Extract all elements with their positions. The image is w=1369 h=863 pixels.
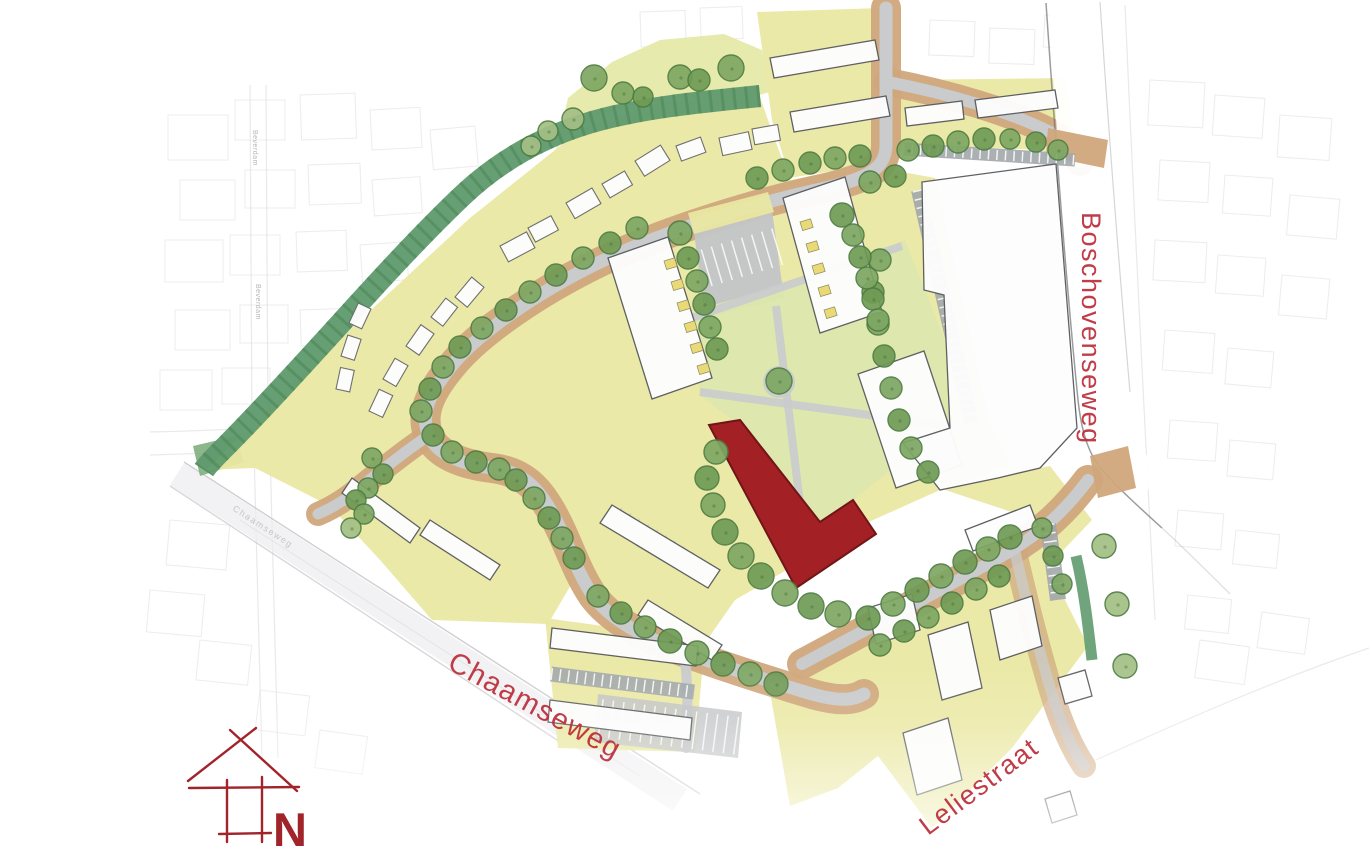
tree-center <box>597 595 600 598</box>
tree-center <box>642 96 645 99</box>
tree-center <box>442 366 445 369</box>
tree-center <box>548 517 551 520</box>
tree-center <box>894 175 897 178</box>
cadastral-parcel <box>1175 510 1224 550</box>
tree-center <box>964 561 967 564</box>
tree-center <box>703 303 706 306</box>
tree-center <box>622 92 625 95</box>
cadastral-parcel <box>1184 595 1231 633</box>
tree-center <box>951 602 954 605</box>
tree-center <box>573 557 576 560</box>
tree-center <box>760 575 763 578</box>
tree-center <box>1009 536 1012 539</box>
cadastral-parcel <box>1279 275 1330 319</box>
tree-center <box>530 145 533 148</box>
tree-center <box>892 603 895 606</box>
tree-center <box>724 531 727 534</box>
tree-center <box>983 138 986 141</box>
tree-center <box>837 613 840 616</box>
tree-center <box>620 612 623 615</box>
bottom-fade-overlay <box>0 660 1369 863</box>
cadastral-parcel <box>1212 95 1265 138</box>
cadastral-parcel <box>175 310 230 350</box>
tree-center <box>866 277 869 280</box>
tree-center <box>1057 149 1060 152</box>
tree-center <box>927 471 930 474</box>
tree-center <box>555 274 558 277</box>
tree-center <box>1009 138 1012 141</box>
tree-center <box>712 504 715 507</box>
cadastral-parcel <box>1162 330 1215 373</box>
tree-center <box>867 617 870 620</box>
tree-center <box>533 497 536 500</box>
cadastral-parcel <box>989 28 1035 65</box>
site-plan-canvas: Beverdam Beverdam Chaamseweg Boschovense… <box>0 0 1369 863</box>
tree-center <box>890 387 893 390</box>
cadastral-parcel <box>300 93 357 140</box>
tree-center <box>898 419 901 422</box>
cadastral-parcel <box>235 100 285 140</box>
tree-center <box>883 355 886 358</box>
tree-center <box>696 280 699 283</box>
tree-center <box>784 592 787 595</box>
cadastral-parcel <box>1225 348 1274 388</box>
tree-center <box>869 181 872 184</box>
tree-center <box>778 380 781 383</box>
tree-center <box>1116 603 1119 606</box>
tree-center <box>679 76 682 79</box>
cadastral-parcel <box>1158 160 1210 203</box>
tree-center <box>879 259 882 262</box>
tree-center <box>371 457 374 460</box>
tree-center <box>432 434 435 437</box>
cadastral-parcel <box>308 163 361 205</box>
tree-center <box>355 499 358 502</box>
tree-center <box>505 309 508 312</box>
tree-center <box>669 640 672 643</box>
tree-center <box>877 319 880 322</box>
cadastral-parcel <box>372 177 422 216</box>
north-label: N <box>273 803 307 856</box>
tree-center <box>547 130 550 133</box>
tree-center <box>987 548 990 551</box>
cadastral-parcel <box>296 230 347 272</box>
cadastral-line <box>1125 5 1155 620</box>
tree-center <box>609 242 612 245</box>
bg-label-beverdam-1: Beverdam <box>251 130 258 166</box>
house-sketch-line <box>219 833 271 834</box>
tree-center <box>957 141 960 144</box>
tree-center <box>740 555 743 558</box>
tree-center <box>696 652 699 655</box>
tree-center <box>1052 555 1055 558</box>
cadastral-parcel <box>1287 195 1340 239</box>
tree-center <box>916 589 919 592</box>
cadastral-parcel <box>245 170 295 208</box>
site-plan-svg: Beverdam Beverdam Chaamseweg Boschovense… <box>0 0 1369 863</box>
tree-center <box>644 626 647 629</box>
tree-center <box>730 67 733 70</box>
tree-center <box>572 118 575 121</box>
cadastral-parcel <box>180 180 235 220</box>
tree-center <box>706 477 709 480</box>
tree-center <box>529 291 532 294</box>
tree-center <box>1103 545 1106 548</box>
bg-label-beverdam-2: Beverdam <box>254 284 261 320</box>
cadastral-parcel <box>929 20 975 57</box>
tree-center <box>1061 583 1064 586</box>
road-edge-line <box>1162 528 1230 594</box>
tree-center <box>636 227 639 230</box>
tree-center <box>940 575 943 578</box>
tree-center <box>382 473 385 476</box>
tree-center <box>709 326 712 329</box>
tree-center <box>420 410 423 413</box>
tree-center <box>903 630 906 633</box>
tree-center <box>498 468 501 471</box>
tree-center <box>872 298 875 301</box>
tree-center <box>561 537 564 540</box>
tree-center <box>459 346 462 349</box>
cadastral-parcel <box>1257 612 1310 654</box>
tree-center <box>367 487 370 490</box>
tree-center <box>810 605 813 608</box>
tree-center <box>363 513 366 516</box>
street-label-boschovenseweg: Boschovenseweg <box>1076 212 1106 445</box>
tree-center <box>907 149 910 152</box>
tree-center <box>475 461 478 464</box>
tree-center <box>998 575 1001 578</box>
tree-center <box>593 77 596 80</box>
cadastral-parcel <box>430 126 478 170</box>
tree-center <box>679 232 682 235</box>
tree-center <box>859 256 862 259</box>
tree-center <box>451 451 454 454</box>
tree-center <box>782 169 785 172</box>
cadastral-parcel <box>1148 80 1205 128</box>
cadastral-parcel <box>165 240 223 282</box>
tree-center <box>975 588 978 591</box>
tree-center <box>841 214 844 217</box>
tree-center <box>698 79 701 82</box>
tree-center <box>927 616 930 619</box>
tree-center <box>716 348 719 351</box>
cadastral-parcel <box>146 590 204 637</box>
tree-center <box>852 234 855 237</box>
cadastral-parcel <box>1167 420 1218 461</box>
cadastral-parcel <box>1153 240 1207 283</box>
cadastral-parcel <box>168 115 228 160</box>
tree-center <box>582 257 585 260</box>
tree-center <box>879 644 882 647</box>
cadastral-parcel <box>240 305 288 343</box>
tree-center <box>429 388 432 391</box>
tree-center <box>1041 527 1044 530</box>
cadastral-parcel <box>1227 440 1276 480</box>
tree-center <box>756 177 759 180</box>
tree-center <box>515 479 518 482</box>
cadastral-parcel <box>160 370 212 410</box>
tree-center <box>481 327 484 330</box>
cadastral-line <box>266 85 268 425</box>
tree-center <box>687 257 690 260</box>
house-sketch-line <box>189 787 299 788</box>
tree-center <box>809 162 812 165</box>
cadastral-parcel <box>1222 175 1273 216</box>
tree-center <box>932 145 935 148</box>
cadastral-parcel <box>370 107 422 150</box>
cadastral-parcel <box>1215 255 1266 296</box>
tree-center <box>859 155 862 158</box>
tree-center <box>715 451 718 454</box>
cadastral-parcel <box>1232 530 1279 568</box>
tree-center <box>350 527 353 530</box>
cadastral-parcel <box>1277 115 1332 161</box>
tree-center <box>910 447 913 450</box>
cadastral-parcel <box>166 520 230 570</box>
tree-center <box>834 157 837 160</box>
cadastral-parcel <box>230 235 280 275</box>
tree-center <box>1035 141 1038 144</box>
